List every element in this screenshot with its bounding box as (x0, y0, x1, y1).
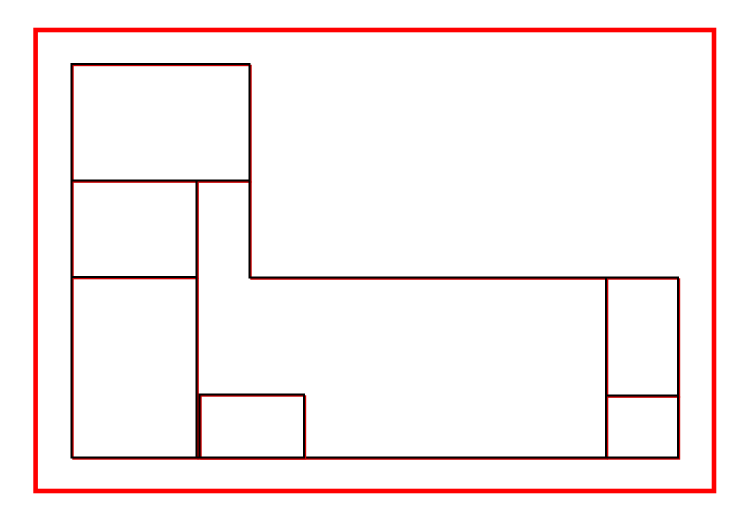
diagram-background (0, 0, 749, 525)
packing-diagram (0, 0, 749, 525)
diagram-stage (0, 0, 749, 525)
